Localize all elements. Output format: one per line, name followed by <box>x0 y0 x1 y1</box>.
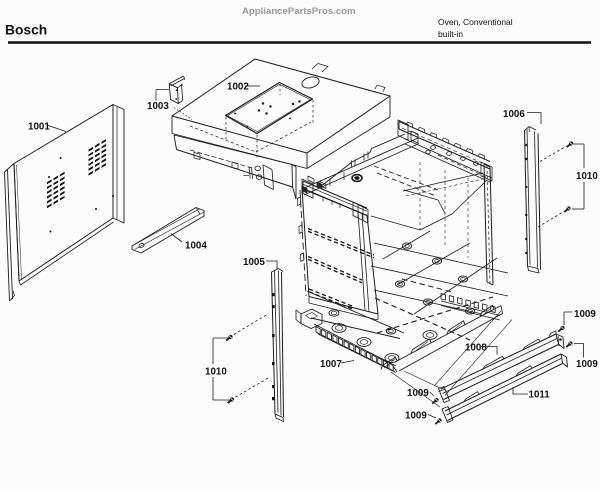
svg-text:Bosch: Bosch <box>5 23 47 38</box>
svg-text:1010: 1010 <box>576 171 598 182</box>
svg-text:1001: 1001 <box>28 122 50 133</box>
svg-text:1010: 1010 <box>205 367 227 378</box>
svg-text:1004: 1004 <box>185 241 207 252</box>
svg-text:1009: 1009 <box>574 309 596 320</box>
svg-text:1003: 1003 <box>147 101 169 112</box>
svg-text:1009: 1009 <box>576 359 598 370</box>
svg-text:1007: 1007 <box>320 359 342 370</box>
svg-text:Oven, Conventional: Oven, Conventional <box>438 17 513 27</box>
svg-text:1009: 1009 <box>405 411 427 422</box>
svg-text:1005: 1005 <box>243 257 265 268</box>
svg-text:1008: 1008 <box>465 343 487 354</box>
svg-text:AppliancePartsPros.com: AppliancePartsPros.com <box>242 6 356 17</box>
svg-text:1006: 1006 <box>503 109 525 120</box>
svg-text:built-in: built-in <box>438 29 463 39</box>
svg-text:1009: 1009 <box>407 388 429 399</box>
svg-text:1002: 1002 <box>227 82 249 93</box>
svg-text:1011: 1011 <box>529 390 551 401</box>
